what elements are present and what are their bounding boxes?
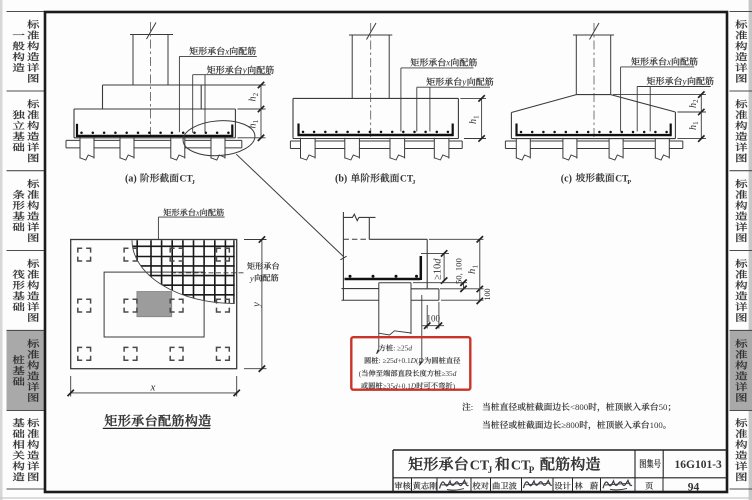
svg-text:<800: <800 [570,402,589,412]
svg-text:x: x [224,46,229,56]
svg-text:x: x [195,208,200,217]
svg-text:1: 1 [692,121,700,125]
svg-text:100: 100 [427,314,441,324]
svg-text:(b): (b) [335,174,347,185]
svg-text:y: y [251,302,263,308]
svg-text:94: 94 [688,481,700,493]
svg-text:2: 2 [692,99,700,103]
svg-text:2: 2 [252,92,260,96]
svg-text:: ≥25d: : ≥25d [393,344,412,353]
svg-text:y: y [461,77,466,87]
svg-text:≥35d: ≥35d [441,369,456,378]
svg-text::: : [471,402,473,412]
svg-text:h: h [467,269,478,274]
svg-text:1: 1 [472,115,480,119]
svg-text:y: y [242,65,247,75]
svg-text:≥10d: ≥10d [432,258,443,280]
svg-text:100: 100 [483,289,492,301]
svg-text:x: x [150,381,156,393]
svg-text:P: P [627,179,631,186]
svg-text:50, 100: 50, 100 [454,258,464,284]
svg-text:P: P [529,465,535,475]
svg-text:50: 50 [659,402,668,412]
svg-text:16G101-3: 16G101-3 [675,459,723,471]
svg-text:1: 1 [472,265,480,269]
svg-text:x: x [666,57,671,67]
svg-text:(c): (c) [561,173,572,184]
svg-text:y: y [249,274,254,283]
svg-text:(a): (a) [125,174,137,185]
svg-text:≥35d+0.1D: ≥35d+0.1D [383,381,417,390]
svg-text:J: J [488,465,493,475]
svg-text:: ≥25d+0.1D(D: : ≥25d+0.1D(D [379,356,425,365]
svg-text:100: 100 [650,420,664,430]
svg-text:x: x [445,58,450,68]
svg-text:≥800: ≥800 [561,420,580,430]
svg-text:1: 1 [252,119,260,123]
svg-text:y: y [682,76,687,86]
